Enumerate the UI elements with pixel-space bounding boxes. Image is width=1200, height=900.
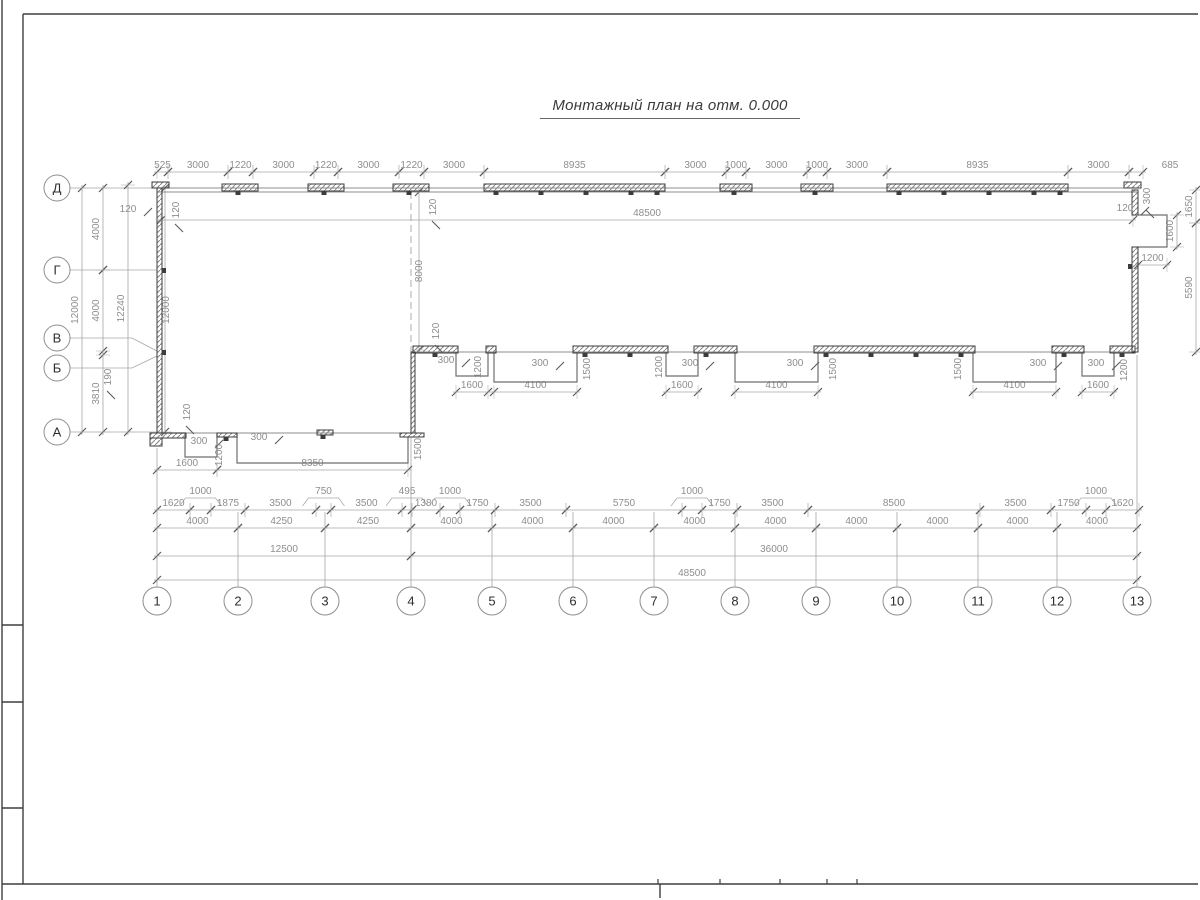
dim-label: 4000 xyxy=(764,516,787,527)
wall-panel xyxy=(1110,346,1135,353)
dim-label: 1000 xyxy=(806,160,829,171)
dim-label-float: 1200 xyxy=(1119,358,1130,381)
dim-label: 685 xyxy=(1162,160,1179,171)
axis-circle-label: 3 xyxy=(321,594,328,609)
leader-tick xyxy=(1141,207,1149,215)
panel-tab xyxy=(628,353,633,357)
wall-panel xyxy=(887,184,1068,191)
axis-lines xyxy=(70,188,1137,587)
dim-label-float: 300 xyxy=(438,355,455,366)
dim-label-float: 120 xyxy=(431,322,442,339)
panel-tab xyxy=(897,191,902,195)
wall-panel xyxy=(150,433,186,438)
panel-tab xyxy=(236,191,241,195)
axis-circle-label: 2 xyxy=(234,594,241,609)
leader-tick xyxy=(107,391,115,399)
dim-label: 8000 xyxy=(414,259,425,282)
panel-tab xyxy=(1062,353,1067,357)
dim-label: 4000 xyxy=(521,516,544,527)
dim-label-float: 300 xyxy=(682,358,699,369)
axis-leader xyxy=(70,338,157,351)
panel-tab xyxy=(407,191,412,195)
dim-label: 3000 xyxy=(846,160,869,171)
dim-bracket xyxy=(386,498,392,506)
dimension-chains: 5253000122030001220300012203000893530001… xyxy=(70,160,1200,587)
axis-circles: 12345678910111213ДГВБА xyxy=(44,175,1151,615)
leader-tick xyxy=(462,359,470,367)
panel-tab xyxy=(224,437,229,441)
dim-label: 3500 xyxy=(269,498,292,509)
axis-circle-label: 8 xyxy=(731,594,738,609)
panel-tab xyxy=(583,353,588,357)
wall-panel xyxy=(413,346,458,353)
dim-label: 1600 xyxy=(671,380,694,391)
dim-label-raised: 750 xyxy=(315,486,332,497)
panel-tab xyxy=(704,353,709,357)
dim-label: 1220 xyxy=(315,160,338,171)
dim-label: 48500 xyxy=(678,568,706,579)
panel-tab xyxy=(539,191,544,195)
dim-label: 1200 xyxy=(1141,253,1164,264)
leader-tick xyxy=(144,208,152,216)
panel-tab xyxy=(1120,353,1125,357)
dim-label: 1220 xyxy=(400,160,423,171)
dim-label: 1600 xyxy=(1087,380,1110,391)
dim-label: 3500 xyxy=(519,498,542,509)
dim-label-float: 300 xyxy=(191,436,208,447)
axis-circle-label: 1 xyxy=(153,594,160,609)
wall-panel xyxy=(308,184,344,191)
axis-circle-label: Д xyxy=(53,181,62,196)
dim-label: 4000 xyxy=(440,516,463,527)
dim-label: 4000 xyxy=(602,516,625,527)
dim-label: 4000 xyxy=(1086,516,1109,527)
dim-label: 1875 xyxy=(217,498,240,509)
panel-tab xyxy=(162,268,166,273)
wall-panel xyxy=(217,433,237,437)
panel-tab xyxy=(655,191,660,195)
wall-panel xyxy=(486,346,496,353)
wall-panel xyxy=(1052,346,1084,353)
wall-panel xyxy=(317,430,333,435)
panel-tab xyxy=(942,191,947,195)
dim-label: 4000 xyxy=(845,516,868,527)
sheet-frame xyxy=(2,0,1198,900)
dim-label: 3500 xyxy=(1004,498,1027,509)
dim-label: 3000 xyxy=(1087,160,1110,171)
dim-label-float: 120 xyxy=(120,204,137,215)
dim-label: 1220 xyxy=(229,160,252,171)
dim-label: 4250 xyxy=(357,516,380,527)
leader-tick xyxy=(556,362,564,370)
dim-label-float: 1500 xyxy=(582,357,593,380)
wall-panel xyxy=(393,184,429,191)
dim-label: 3500 xyxy=(761,498,784,509)
wall-panel xyxy=(150,438,162,446)
axis-circle-label: 13 xyxy=(1130,594,1144,609)
dim-label-raised: 495 xyxy=(399,486,416,497)
wall-panel xyxy=(573,346,668,353)
dim-label-float: 300 xyxy=(1088,358,1105,369)
dim-label-float: 1500 xyxy=(828,357,839,380)
wall-panel xyxy=(152,182,169,188)
dim-label: 8500 xyxy=(883,498,906,509)
dim-label: 4000 xyxy=(91,217,102,240)
axis-circle-label: В xyxy=(53,331,62,346)
floating-dimension-labels: 1201201201201201203003001200150030012003… xyxy=(103,187,1154,466)
dim-label-float: 300 xyxy=(1142,187,1153,204)
wall-recess-outline xyxy=(1138,215,1167,247)
dim-label-raised: 1000 xyxy=(681,486,704,497)
dim-label: 12240 xyxy=(116,294,127,322)
dim-label-float: 190 xyxy=(103,368,114,385)
dim-bracket xyxy=(339,498,345,506)
wall-panel xyxy=(1132,247,1138,352)
panel-tab xyxy=(824,353,829,357)
dim-label-float: 1200 xyxy=(473,355,484,378)
wall-panel xyxy=(801,184,833,191)
drawing-canvas: 5253000122030001220300012203000893530001… xyxy=(0,0,1200,900)
dim-label: 3000 xyxy=(187,160,210,171)
axis-circle-label: 4 xyxy=(407,594,414,609)
dim-label: 4000 xyxy=(683,516,706,527)
dim-label: 12000 xyxy=(70,296,81,324)
panel-tab xyxy=(1128,264,1132,269)
dim-label: 3000 xyxy=(684,160,707,171)
dim-label: 1750 xyxy=(708,498,731,509)
leader-tick xyxy=(432,221,440,229)
wall-panel xyxy=(400,433,424,437)
dim-label: 1600 xyxy=(176,458,199,469)
leader-tick xyxy=(706,362,714,370)
dim-label-float: 120 xyxy=(182,403,193,420)
dim-label: 3000 xyxy=(357,160,380,171)
dim-label-float: 300 xyxy=(251,432,268,443)
axis-circle-label: Г xyxy=(53,263,60,278)
walls xyxy=(150,182,1167,463)
dim-label: 36000 xyxy=(760,544,788,555)
dim-label-float: 120 xyxy=(1117,203,1134,214)
panel-tab xyxy=(813,191,818,195)
dim-label: 4250 xyxy=(270,516,293,527)
panel-tab xyxy=(162,350,166,355)
leader-tick xyxy=(175,224,183,232)
wall-panel xyxy=(814,346,975,353)
dim-label: 3000 xyxy=(765,160,788,171)
wall-panel xyxy=(694,346,737,353)
dim-label: 3810 xyxy=(91,382,102,405)
leader-tick xyxy=(275,436,283,444)
dim-label: 1000 xyxy=(725,160,748,171)
axis-circle-label: 11 xyxy=(971,594,985,609)
dim-label: 12000 xyxy=(161,296,172,324)
dim-label-float: 1200 xyxy=(654,355,665,378)
dim-label: 8935 xyxy=(966,160,989,171)
axis-circle-label: Б xyxy=(53,361,62,376)
dim-label-raised: 1000 xyxy=(1085,486,1108,497)
dim-label: 4000 xyxy=(1006,516,1029,527)
panel-tab xyxy=(959,353,964,357)
panel-tab xyxy=(629,191,634,195)
leader-tick xyxy=(1054,362,1062,370)
dim-label: 8935 xyxy=(563,160,586,171)
drawing-title: Монтажный план на отм. 0.000 xyxy=(540,97,800,119)
axis-circle-label: А xyxy=(53,425,62,440)
dim-label-float: 1500 xyxy=(953,357,964,380)
axis-circle-label: 5 xyxy=(488,594,495,609)
dim-label: 525 xyxy=(154,160,171,171)
dim-label-float: 300 xyxy=(787,358,804,369)
axis-circle-label: 9 xyxy=(812,594,819,609)
dim-label-float: 300 xyxy=(532,358,549,369)
panel-tab xyxy=(1032,191,1037,195)
dim-label-float: 120 xyxy=(428,198,439,215)
panel-tab xyxy=(494,191,499,195)
panel-tab xyxy=(321,435,326,439)
dim-bracket xyxy=(671,498,677,506)
panel-tab xyxy=(584,191,589,195)
drawing-sheet: 5253000122030001220300012203000893530001… xyxy=(0,0,1200,900)
dim-label-float: 300 xyxy=(1030,358,1047,369)
axis-circle-label: 6 xyxy=(569,594,576,609)
dim-label: 4000 xyxy=(926,516,949,527)
wall-panel xyxy=(484,184,665,191)
dim-label-raised: 1000 xyxy=(439,486,462,497)
dim-label: 48500 xyxy=(633,208,661,219)
dim-label-raised: 1000 xyxy=(189,486,212,497)
panel-tab xyxy=(914,353,919,357)
axis-circle-label: 10 xyxy=(890,594,904,609)
dim-label: 3500 xyxy=(355,498,378,509)
leader-tick xyxy=(1146,210,1154,218)
panel-tab xyxy=(322,191,327,195)
wall-panel xyxy=(222,184,258,191)
panel-tab xyxy=(732,191,737,195)
dim-label: 4000 xyxy=(186,516,209,527)
axis-circle-label: 12 xyxy=(1050,594,1064,609)
dim-label: 1650 xyxy=(1184,195,1195,218)
dim-label-float: 1500 xyxy=(413,437,424,460)
dim-label: 4000 xyxy=(91,299,102,322)
dim-label: 1750 xyxy=(466,498,489,509)
axis-circle-label: 7 xyxy=(650,594,657,609)
wall-panel xyxy=(720,184,752,191)
dim-label: 12500 xyxy=(270,544,298,555)
wall-panel xyxy=(411,352,415,433)
dim-label: 3000 xyxy=(272,160,295,171)
dim-bracket xyxy=(303,498,309,506)
dim-label-float: 1200 xyxy=(214,443,225,466)
axis-leader xyxy=(70,356,157,368)
dim-label: 1620 xyxy=(1111,498,1134,509)
wall-recess-outline xyxy=(735,352,818,382)
dim-label: 5750 xyxy=(613,498,636,509)
dim-label: 5590 xyxy=(1184,276,1195,299)
panel-tab xyxy=(987,191,992,195)
dim-label: 1600 xyxy=(461,380,484,391)
dim-label: 3000 xyxy=(443,160,466,171)
wall-panel xyxy=(1124,182,1141,188)
panel-tab xyxy=(1058,191,1063,195)
panel-tab xyxy=(869,353,874,357)
wall-panel xyxy=(157,188,162,433)
dim-label-float: 120 xyxy=(171,201,182,218)
